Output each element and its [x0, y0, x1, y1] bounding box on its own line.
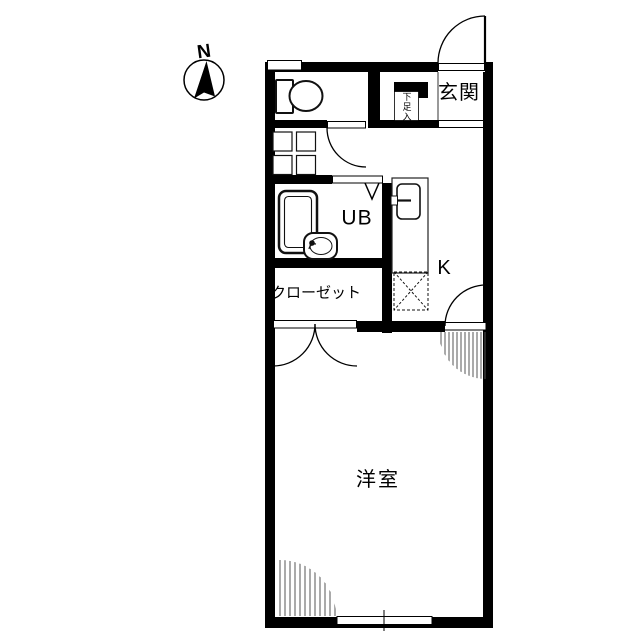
unit-bath-label: UB — [341, 208, 372, 229]
floorplan-canvas: N 玄関 下足入 UB K クローゼット 洋室 — [0, 0, 640, 640]
wall-ub-top — [265, 175, 332, 184]
floorplan-drawing — [0, 0, 640, 640]
wall-toilet-bottom — [265, 120, 327, 128]
closet-door-arc-left — [273, 324, 315, 366]
toilet-door-leaf — [328, 122, 366, 129]
kitchen-door-swing-hatch — [441, 332, 485, 382]
entrance-door-arc — [438, 16, 485, 63]
entrance-step — [439, 121, 484, 128]
kitchen-door-arc — [445, 285, 486, 326]
wall-room-top — [357, 321, 445, 332]
kitchen-label: K — [437, 258, 450, 278]
ub-door-v-icon — [365, 183, 379, 199]
wall-shoebox-post — [418, 82, 428, 98]
kitchen-door-panel — [445, 323, 487, 331]
wall-entrance-left — [368, 72, 380, 128]
closet-door-arc-right — [315, 324, 357, 366]
compass-icon — [184, 60, 224, 100]
toilet-door-arc — [327, 128, 366, 167]
washbasin-icon — [304, 233, 337, 259]
compass-needle-icon — [194, 61, 215, 99]
closet-label: クローゼット — [271, 286, 361, 301]
washing-machine-pan-icon — [273, 132, 316, 175]
ub-door-track — [333, 176, 383, 183]
north-label: N — [196, 42, 212, 63]
shoe-storage-label: 下足入 — [402, 92, 411, 122]
top-window — [268, 61, 302, 71]
window-swing-hatch — [280, 559, 335, 616]
refrigerator-space-icon — [394, 272, 428, 310]
toilet-icon — [276, 80, 323, 113]
kitchen-counter — [391, 178, 428, 273]
entrance-label: 玄関 — [438, 83, 480, 103]
western-room-label: 洋室 — [356, 470, 400, 490]
entrance-sill — [439, 64, 485, 71]
kitchen-faucet-icon — [391, 196, 398, 205]
